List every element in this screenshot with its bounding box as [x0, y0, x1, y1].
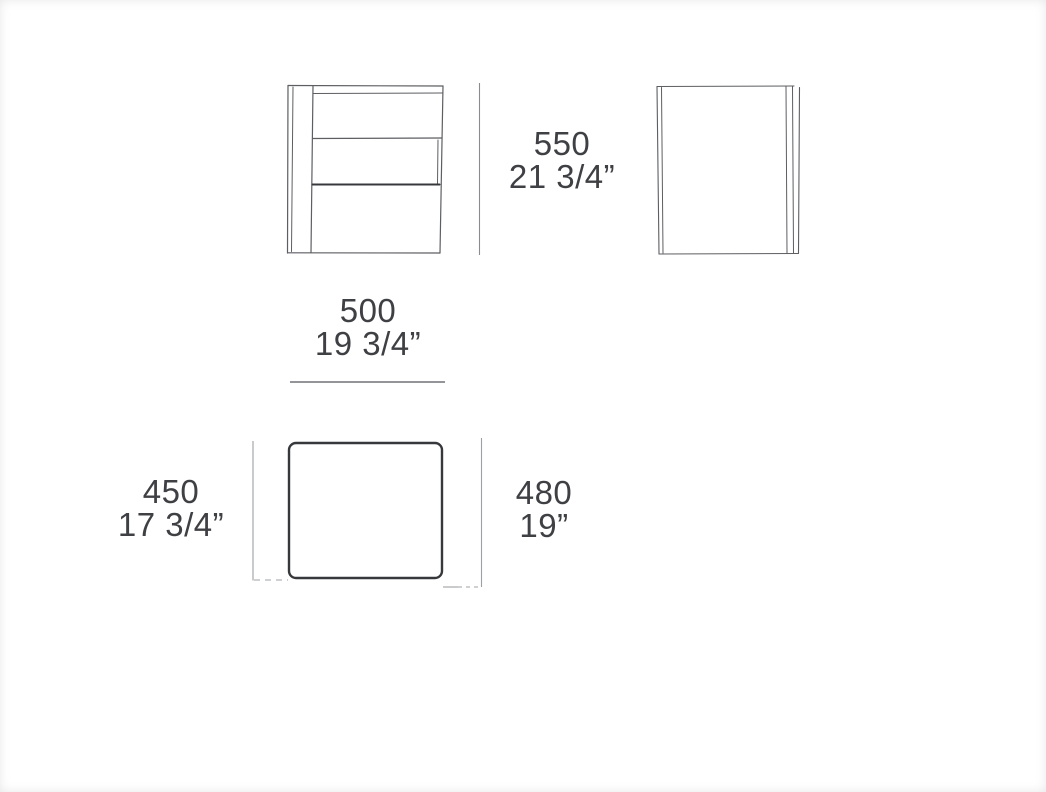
- technical-drawing-svg: [0, 0, 1046, 792]
- height-mm-value: 550: [509, 127, 615, 160]
- width-mm-value: 500: [315, 294, 421, 327]
- front-top-inner-line: [313, 93, 443, 94]
- width-dimension-label: 500 19 3/4”: [315, 294, 421, 360]
- height-inches-value: 21 3/4”: [509, 160, 615, 193]
- width-inches-value: 19 3/4”: [315, 327, 421, 360]
- side-top-edge: [657, 86, 794, 87]
- front-top-edge: [288, 86, 443, 87]
- front-left-inner-line: [292, 87, 294, 252]
- front-panel-right-edge: [311, 86, 313, 253]
- dimension-drawing: 550 21 3/4” 500 19 3/4” 450 17 3/4” 480 …: [0, 0, 1046, 792]
- height-dimension-label: 550 21 3/4”: [509, 127, 615, 193]
- overall-depth-mm-value: 480: [516, 476, 573, 509]
- side-right-edge: [799, 88, 800, 254]
- side-right-inner-line-1: [786, 87, 787, 254]
- overall-depth-inches-value: 19”: [516, 509, 573, 542]
- side-bottom-edge: [659, 254, 798, 255]
- front-left-edge: [288, 86, 289, 254]
- side-view: [657, 86, 800, 254]
- front-right-edge: [440, 86, 443, 253]
- front-drawer-divider-1: [313, 138, 442, 139]
- front-view: [288, 86, 444, 254]
- front-middle-drawer-edge: [438, 140, 439, 184]
- depth-inches-value: 17 3/4”: [118, 508, 224, 541]
- plan-view: [289, 443, 442, 578]
- side-left-inner-line: [662, 88, 664, 254]
- depth-dimension-label: 450 17 3/4”: [118, 475, 224, 541]
- depth-mm-value: 450: [118, 475, 224, 508]
- side-right-inner-line-2: [793, 87, 794, 254]
- side-left-edge: [657, 87, 659, 255]
- overall-depth-dimension-label: 480 19”: [516, 476, 573, 542]
- plan-outline: [289, 443, 442, 578]
